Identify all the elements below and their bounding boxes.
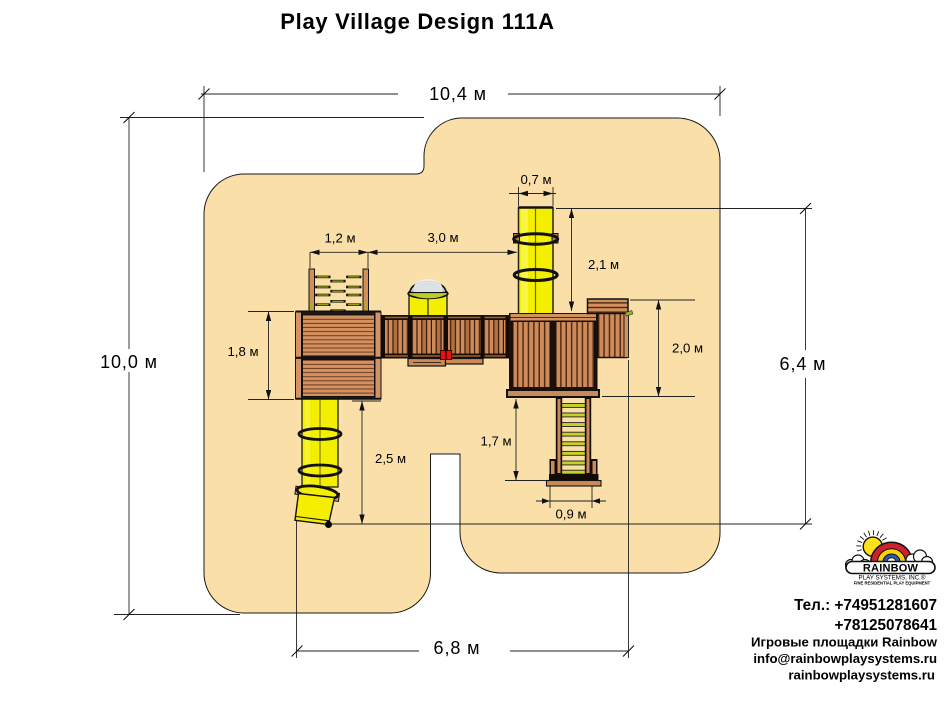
svg-text:Play Village Design 111A: Play Village Design 111A bbox=[280, 9, 554, 34]
svg-text:6,4 м: 6,4 м bbox=[780, 354, 827, 374]
svg-text:0,9 м: 0,9 м bbox=[555, 507, 586, 522]
svg-text:FINE RESIDENTIAL PLAY EQUIPMEN: FINE RESIDENTIAL PLAY EQUIPMENT bbox=[854, 581, 931, 586]
svg-text:2,5 м: 2,5 м bbox=[375, 451, 406, 466]
svg-text:RAINBOW: RAINBOW bbox=[863, 563, 919, 575]
svg-text:2,1 м: 2,1 м bbox=[588, 257, 619, 272]
svg-text:+78125078641: +78125078641 bbox=[834, 617, 937, 634]
svg-text:1,7 м: 1,7 м bbox=[481, 434, 512, 449]
svg-text:1,8 м: 1,8 м bbox=[227, 344, 258, 359]
svg-text:Игровые площадки Rainbow: Игровые площадки Rainbow bbox=[751, 635, 938, 650]
svg-text:info@rainbowplaysystems.ru: info@rainbowplaysystems.ru bbox=[753, 651, 937, 666]
svg-text:1,2 м: 1,2 м bbox=[324, 231, 355, 246]
svg-text:rainbowplaysystems.ru: rainbowplaysystems.ru bbox=[788, 668, 935, 683]
svg-text:2,0 м: 2,0 м bbox=[672, 341, 703, 356]
svg-text:10,0 м: 10,0 м bbox=[100, 352, 158, 372]
svg-text:Тел.: +74951281607: Тел.: +74951281607 bbox=[794, 597, 937, 614]
svg-text:3,0 м: 3,0 м bbox=[427, 230, 458, 245]
svg-text:6,8 м: 6,8 м bbox=[434, 638, 481, 658]
svg-text:10,4 м: 10,4 м bbox=[429, 84, 487, 104]
svg-text:0,7 м: 0,7 м bbox=[520, 172, 551, 187]
